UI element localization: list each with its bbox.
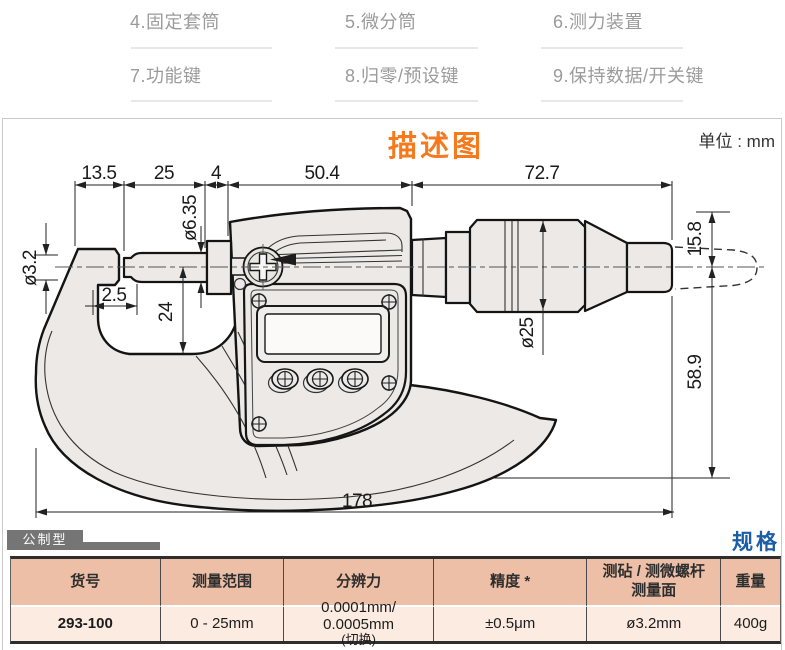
callout-divider xyxy=(541,100,683,102)
dim-dia-6-35: ø6.35 xyxy=(180,195,201,241)
callout-zero-preset: 8.归零/预设键 xyxy=(345,62,459,88)
dim-dia-25: ø25 xyxy=(517,317,538,348)
dim-2-5: 2.5 xyxy=(102,285,127,306)
cell-resolution-line1: 0.0001mm/ 0.0005mm xyxy=(284,600,433,633)
dim-4: 4 xyxy=(211,163,222,184)
header-range: 测量范围 xyxy=(161,559,285,607)
cell-resolution: 0.0001mm/ 0.0005mm (切换) xyxy=(284,607,434,641)
header-measuring-face-line1: 测砧 / 测微螺杆 xyxy=(603,563,706,582)
cell-range: 0 - 25mm xyxy=(161,607,285,641)
dim-dia-3-2: ø3.2 xyxy=(20,250,41,286)
header-weight: 重量 xyxy=(721,559,780,607)
dim-15-8: 15.8 xyxy=(685,222,706,257)
header-measuring-face: 测砧 / 测微螺杆 测量面 xyxy=(587,559,721,607)
header-part-number: 货号 xyxy=(11,559,161,607)
micrometer-technical-drawing: 13.5 25 4 50.4 72.7 178 2.5 ø3.2 ø6.35 2… xyxy=(0,118,785,530)
dim-50-4: 50.4 xyxy=(305,163,341,184)
callout-divider xyxy=(541,47,683,49)
dim-178: 178 xyxy=(342,491,372,512)
dim-24: 24 xyxy=(156,301,177,322)
callout-thimble: 5.微分筒 xyxy=(345,8,417,34)
cell-measuring-face: ø3.2mm xyxy=(587,607,721,641)
dim-25: 25 xyxy=(154,163,174,184)
callout-divider xyxy=(131,100,272,102)
dim-58-9: 58.9 xyxy=(685,355,706,390)
control-buttons xyxy=(269,369,369,393)
dim-72-7: 72.7 xyxy=(525,163,560,184)
cell-part-number: 293-100 xyxy=(11,607,161,641)
callout-function-key: 7.功能键 xyxy=(130,62,202,88)
spec-table: 货号 测量范围 分辨力 精度 * 测砧 / 测微螺杆 测量面 重量 293-10… xyxy=(10,556,781,644)
spec-table-data-row: 293-100 0 - 25mm 0.0001mm/ 0.0005mm (切换)… xyxy=(11,607,780,641)
thimble-taper xyxy=(585,221,627,311)
catalog-page: 4.固定套筒 5.微分筒 6.测力装置 7.功能键 8.归零/预设键 9.保持数… xyxy=(0,0,785,650)
callout-fixed-sleeve: 4.固定套筒 xyxy=(130,8,220,34)
header-measuring-face-line2: 测量面 xyxy=(631,582,676,601)
metric-type-tab: 公制型 xyxy=(7,530,83,549)
dim-13-5: 13.5 xyxy=(82,163,117,184)
cell-weight: 400g xyxy=(721,607,780,641)
thimble-barrel xyxy=(470,220,585,312)
spec-section-title: 规格 xyxy=(732,526,780,556)
cell-resolution-line2: (切换) xyxy=(341,633,376,647)
lcd-display xyxy=(257,306,389,362)
header-accuracy: 精度 * xyxy=(434,559,588,607)
callout-ratchet: 6.测力装置 xyxy=(553,8,643,34)
callout-divider xyxy=(335,100,478,102)
callout-divider xyxy=(131,47,272,49)
callout-divider xyxy=(335,47,478,49)
callout-hold-onoff: 9.保持数据/开关键 xyxy=(553,62,704,88)
cell-accuracy: ±0.5μm xyxy=(434,607,588,641)
